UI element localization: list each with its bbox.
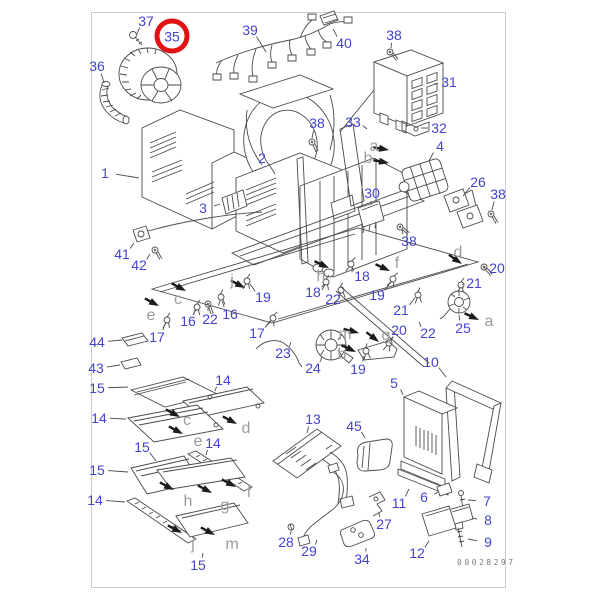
part-label[interactable]: 13 — [305, 412, 321, 426]
part-label[interactable]: 33 — [345, 115, 361, 129]
connection-letter: d — [454, 245, 463, 261]
direction-arrow-icon — [221, 413, 239, 427]
direction-arrow-icon — [199, 524, 217, 538]
part-label[interactable]: 1 — [101, 166, 109, 180]
connection-letter: c — [174, 292, 182, 308]
part-label[interactable]: 32 — [431, 121, 447, 135]
part-label[interactable]: 38 — [401, 234, 417, 248]
direction-arrow-icon — [220, 476, 238, 490]
part-label[interactable]: 15 — [134, 440, 150, 454]
part-label[interactable]: 22 — [420, 326, 436, 340]
part-label[interactable]: 17 — [249, 326, 265, 340]
label-leader-overlay — [0, 0, 600, 600]
part-label[interactable]: 21 — [393, 303, 409, 317]
connection-letter: g — [382, 328, 391, 344]
part-label[interactable]: 19 — [255, 290, 271, 304]
connection-letter: b — [338, 347, 347, 363]
part-label[interactable]: 43 — [88, 361, 104, 375]
connection-letter: g — [221, 498, 230, 514]
part-label[interactable]: 39 — [242, 23, 258, 37]
connection-letter: m — [225, 537, 238, 553]
connection-letter: f — [395, 256, 399, 272]
part-label[interactable]: 34 — [354, 552, 370, 566]
parts-diagram: 3735363940383133323824126383033841421818… — [0, 0, 600, 600]
direction-arrow-icon — [158, 479, 176, 493]
connection-letter: j — [191, 537, 195, 553]
direction-arrow-icon — [164, 406, 182, 420]
direction-arrow-icon — [196, 482, 214, 496]
part-label[interactable]: 42 — [131, 258, 147, 272]
part-label[interactable]: 18 — [305, 285, 321, 299]
direction-arrow-icon — [166, 522, 184, 536]
part-label[interactable]: 5 — [390, 376, 398, 390]
part-label[interactable]: 29 — [301, 544, 317, 558]
part-label[interactable]: 18 — [354, 269, 370, 283]
part-label[interactable]: 9 — [484, 535, 492, 549]
part-label[interactable]: 40 — [336, 36, 352, 50]
part-label[interactable]: 22 — [325, 292, 341, 306]
connection-letter: d — [242, 421, 251, 437]
part-label-highlighted[interactable]: 35 — [155, 19, 190, 54]
connection-letter: j — [230, 273, 234, 289]
part-label[interactable]: 12 — [409, 546, 425, 560]
connection-letter: f — [247, 485, 251, 501]
part-label[interactable]: 38 — [386, 28, 402, 42]
part-label[interactable]: 14 — [91, 411, 107, 425]
part-label[interactable]: 36 — [89, 59, 105, 73]
part-label[interactable]: 15 — [89, 381, 105, 395]
direction-arrow-icon — [373, 157, 390, 167]
connection-letter: b — [364, 151, 373, 167]
part-label[interactable]: 8 — [484, 513, 492, 527]
part-label[interactable]: 19 — [350, 362, 366, 376]
part-label[interactable]: 10 — [423, 355, 439, 369]
part-label[interactable]: 38 — [309, 116, 325, 130]
part-label[interactable]: 16 — [180, 314, 196, 328]
direction-arrow-icon — [374, 261, 392, 274]
part-label[interactable]: 14 — [87, 493, 103, 507]
part-label[interactable]: 22 — [202, 312, 218, 326]
connection-letter: e — [147, 308, 156, 324]
part-label[interactable]: 21 — [466, 276, 482, 290]
part-label[interactable]: 26 — [470, 175, 486, 189]
part-label[interactable]: 15 — [89, 463, 105, 477]
part-label[interactable]: 16 — [222, 307, 238, 321]
part-label[interactable]: 14 — [205, 436, 221, 450]
part-label[interactable]: 19 — [369, 288, 385, 302]
part-label[interactable]: 14 — [215, 373, 231, 387]
part-label[interactable]: 30 — [364, 186, 380, 200]
part-label[interactable]: 11 — [392, 496, 407, 510]
connection-letter: e — [194, 434, 203, 450]
part-label[interactable]: 17 — [149, 330, 165, 344]
connection-letter: h — [184, 494, 193, 510]
figure-code: 00028297 — [457, 558, 516, 567]
part-label[interactable]: 15 — [190, 558, 206, 572]
connection-letter: m — [338, 327, 351, 343]
part-label[interactable]: 4 — [436, 139, 444, 153]
part-label[interactable]: 20 — [489, 261, 505, 275]
part-label[interactable]: 41 — [114, 247, 130, 261]
part-label[interactable]: 44 — [89, 335, 105, 349]
part-label[interactable]: 7 — [483, 494, 491, 508]
part-label[interactable]: 37 — [138, 14, 154, 28]
connection-letter: c — [183, 413, 191, 429]
part-label[interactable]: 2 — [258, 151, 266, 165]
part-label[interactable]: 3 — [199, 201, 207, 215]
part-label[interactable]: 20 — [391, 323, 407, 337]
part-label[interactable]: 23 — [275, 346, 291, 360]
part-label[interactable]: 28 — [278, 535, 294, 549]
direction-arrow-icon — [364, 329, 381, 345]
connection-letter: h — [317, 269, 326, 285]
part-label[interactable]: 45 — [346, 419, 362, 433]
part-label[interactable]: 27 — [376, 517, 392, 531]
part-label[interactable]: 31 — [441, 75, 457, 89]
part-label[interactable]: 6 — [420, 490, 428, 504]
connection-letter: a — [485, 314, 494, 330]
part-label[interactable]: 38 — [490, 187, 506, 201]
part-label[interactable]: 24 — [305, 361, 321, 375]
part-label[interactable]: 25 — [455, 321, 471, 335]
